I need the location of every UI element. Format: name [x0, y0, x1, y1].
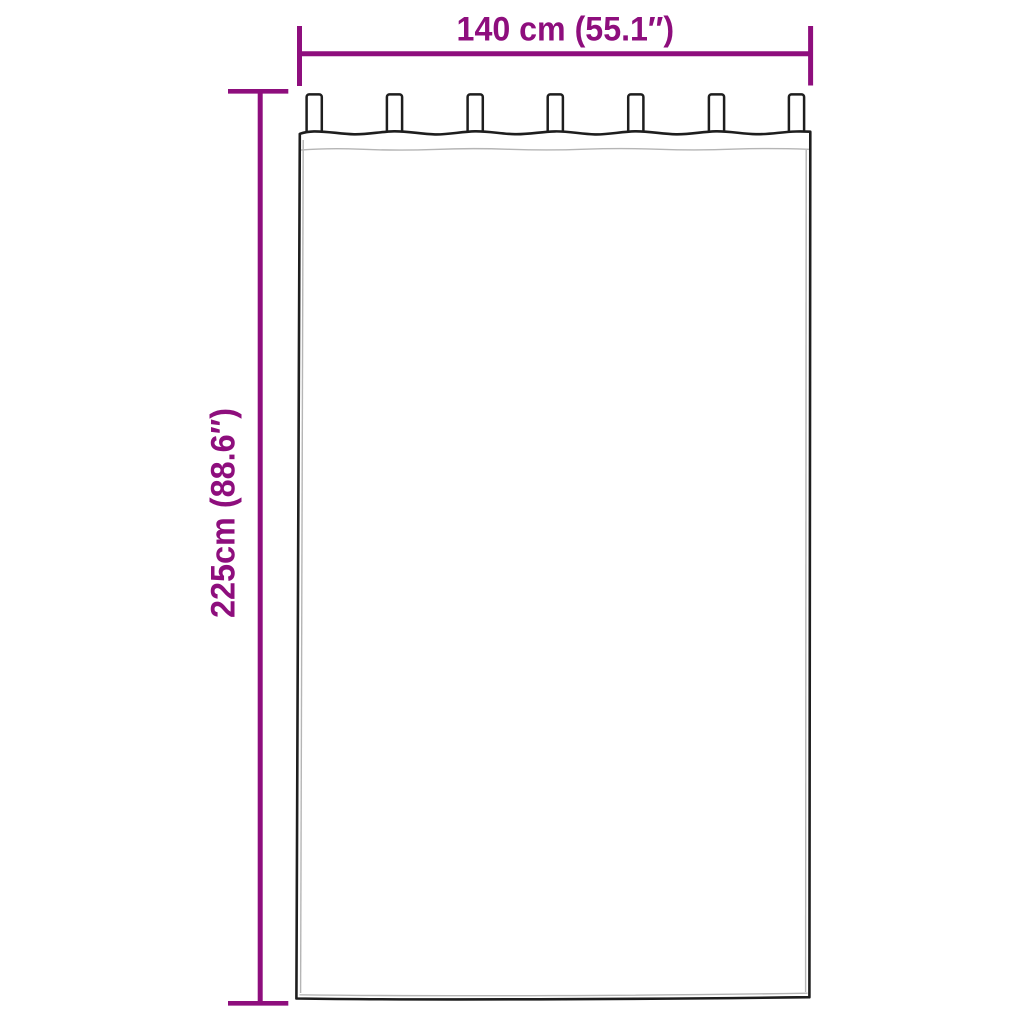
svg-text:140 cm (55.1″): 140 cm (55.1″): [457, 10, 675, 48]
svg-text:225cm (88.6″): 225cm (88.6″): [205, 408, 243, 618]
